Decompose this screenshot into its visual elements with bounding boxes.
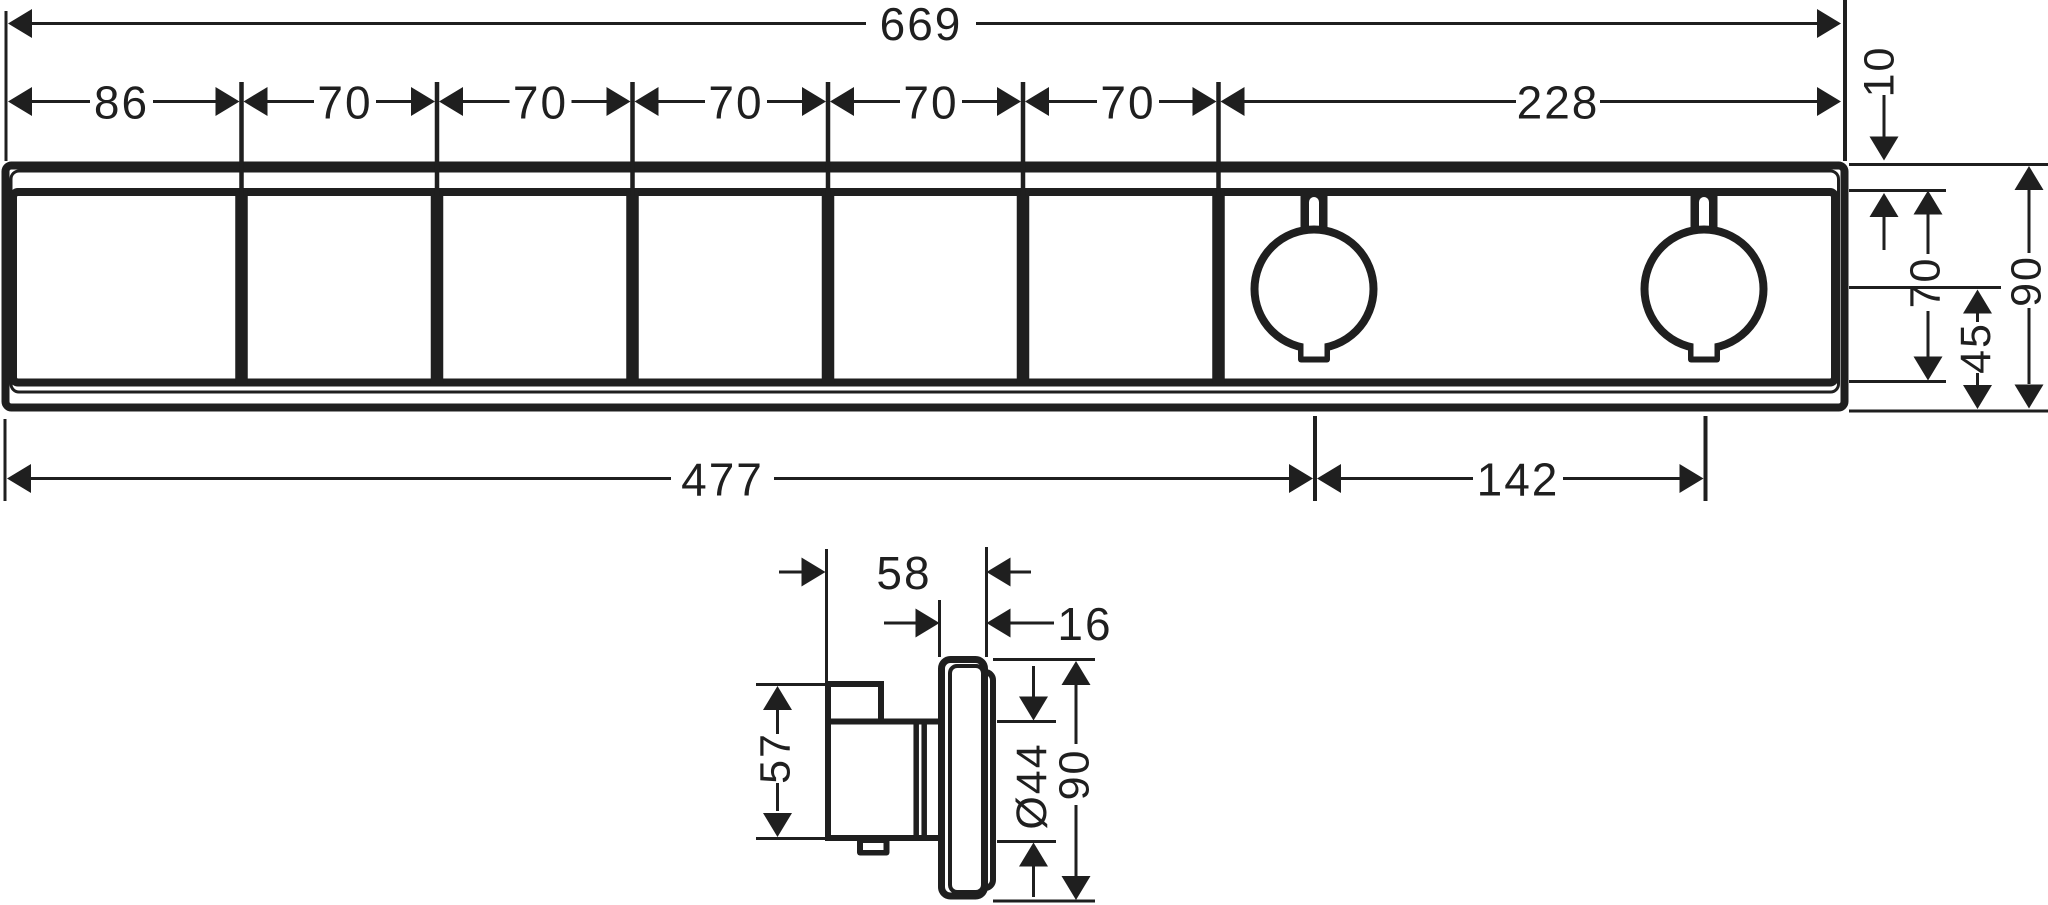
svg-text:70: 70 bbox=[317, 77, 372, 129]
svg-text:228: 228 bbox=[1517, 77, 1600, 129]
svg-text:70: 70 bbox=[708, 77, 763, 129]
svg-text:Ø44: Ø44 bbox=[1008, 742, 1056, 829]
svg-text:58: 58 bbox=[876, 547, 931, 599]
svg-text:90: 90 bbox=[1051, 749, 1099, 801]
svg-text:86: 86 bbox=[94, 77, 149, 129]
svg-text:669: 669 bbox=[880, 0, 963, 50]
svg-text:57: 57 bbox=[752, 732, 800, 784]
svg-text:70: 70 bbox=[1100, 77, 1155, 129]
svg-text:70: 70 bbox=[513, 77, 568, 129]
svg-text:45: 45 bbox=[1952, 322, 2000, 374]
svg-text:16: 16 bbox=[1057, 598, 1112, 650]
svg-text:10: 10 bbox=[1856, 46, 1904, 98]
svg-text:477: 477 bbox=[681, 454, 764, 506]
svg-text:70: 70 bbox=[903, 77, 958, 129]
svg-text:142: 142 bbox=[1477, 454, 1560, 506]
svg-text:70: 70 bbox=[1902, 257, 1950, 309]
svg-text:90: 90 bbox=[2003, 255, 2048, 307]
